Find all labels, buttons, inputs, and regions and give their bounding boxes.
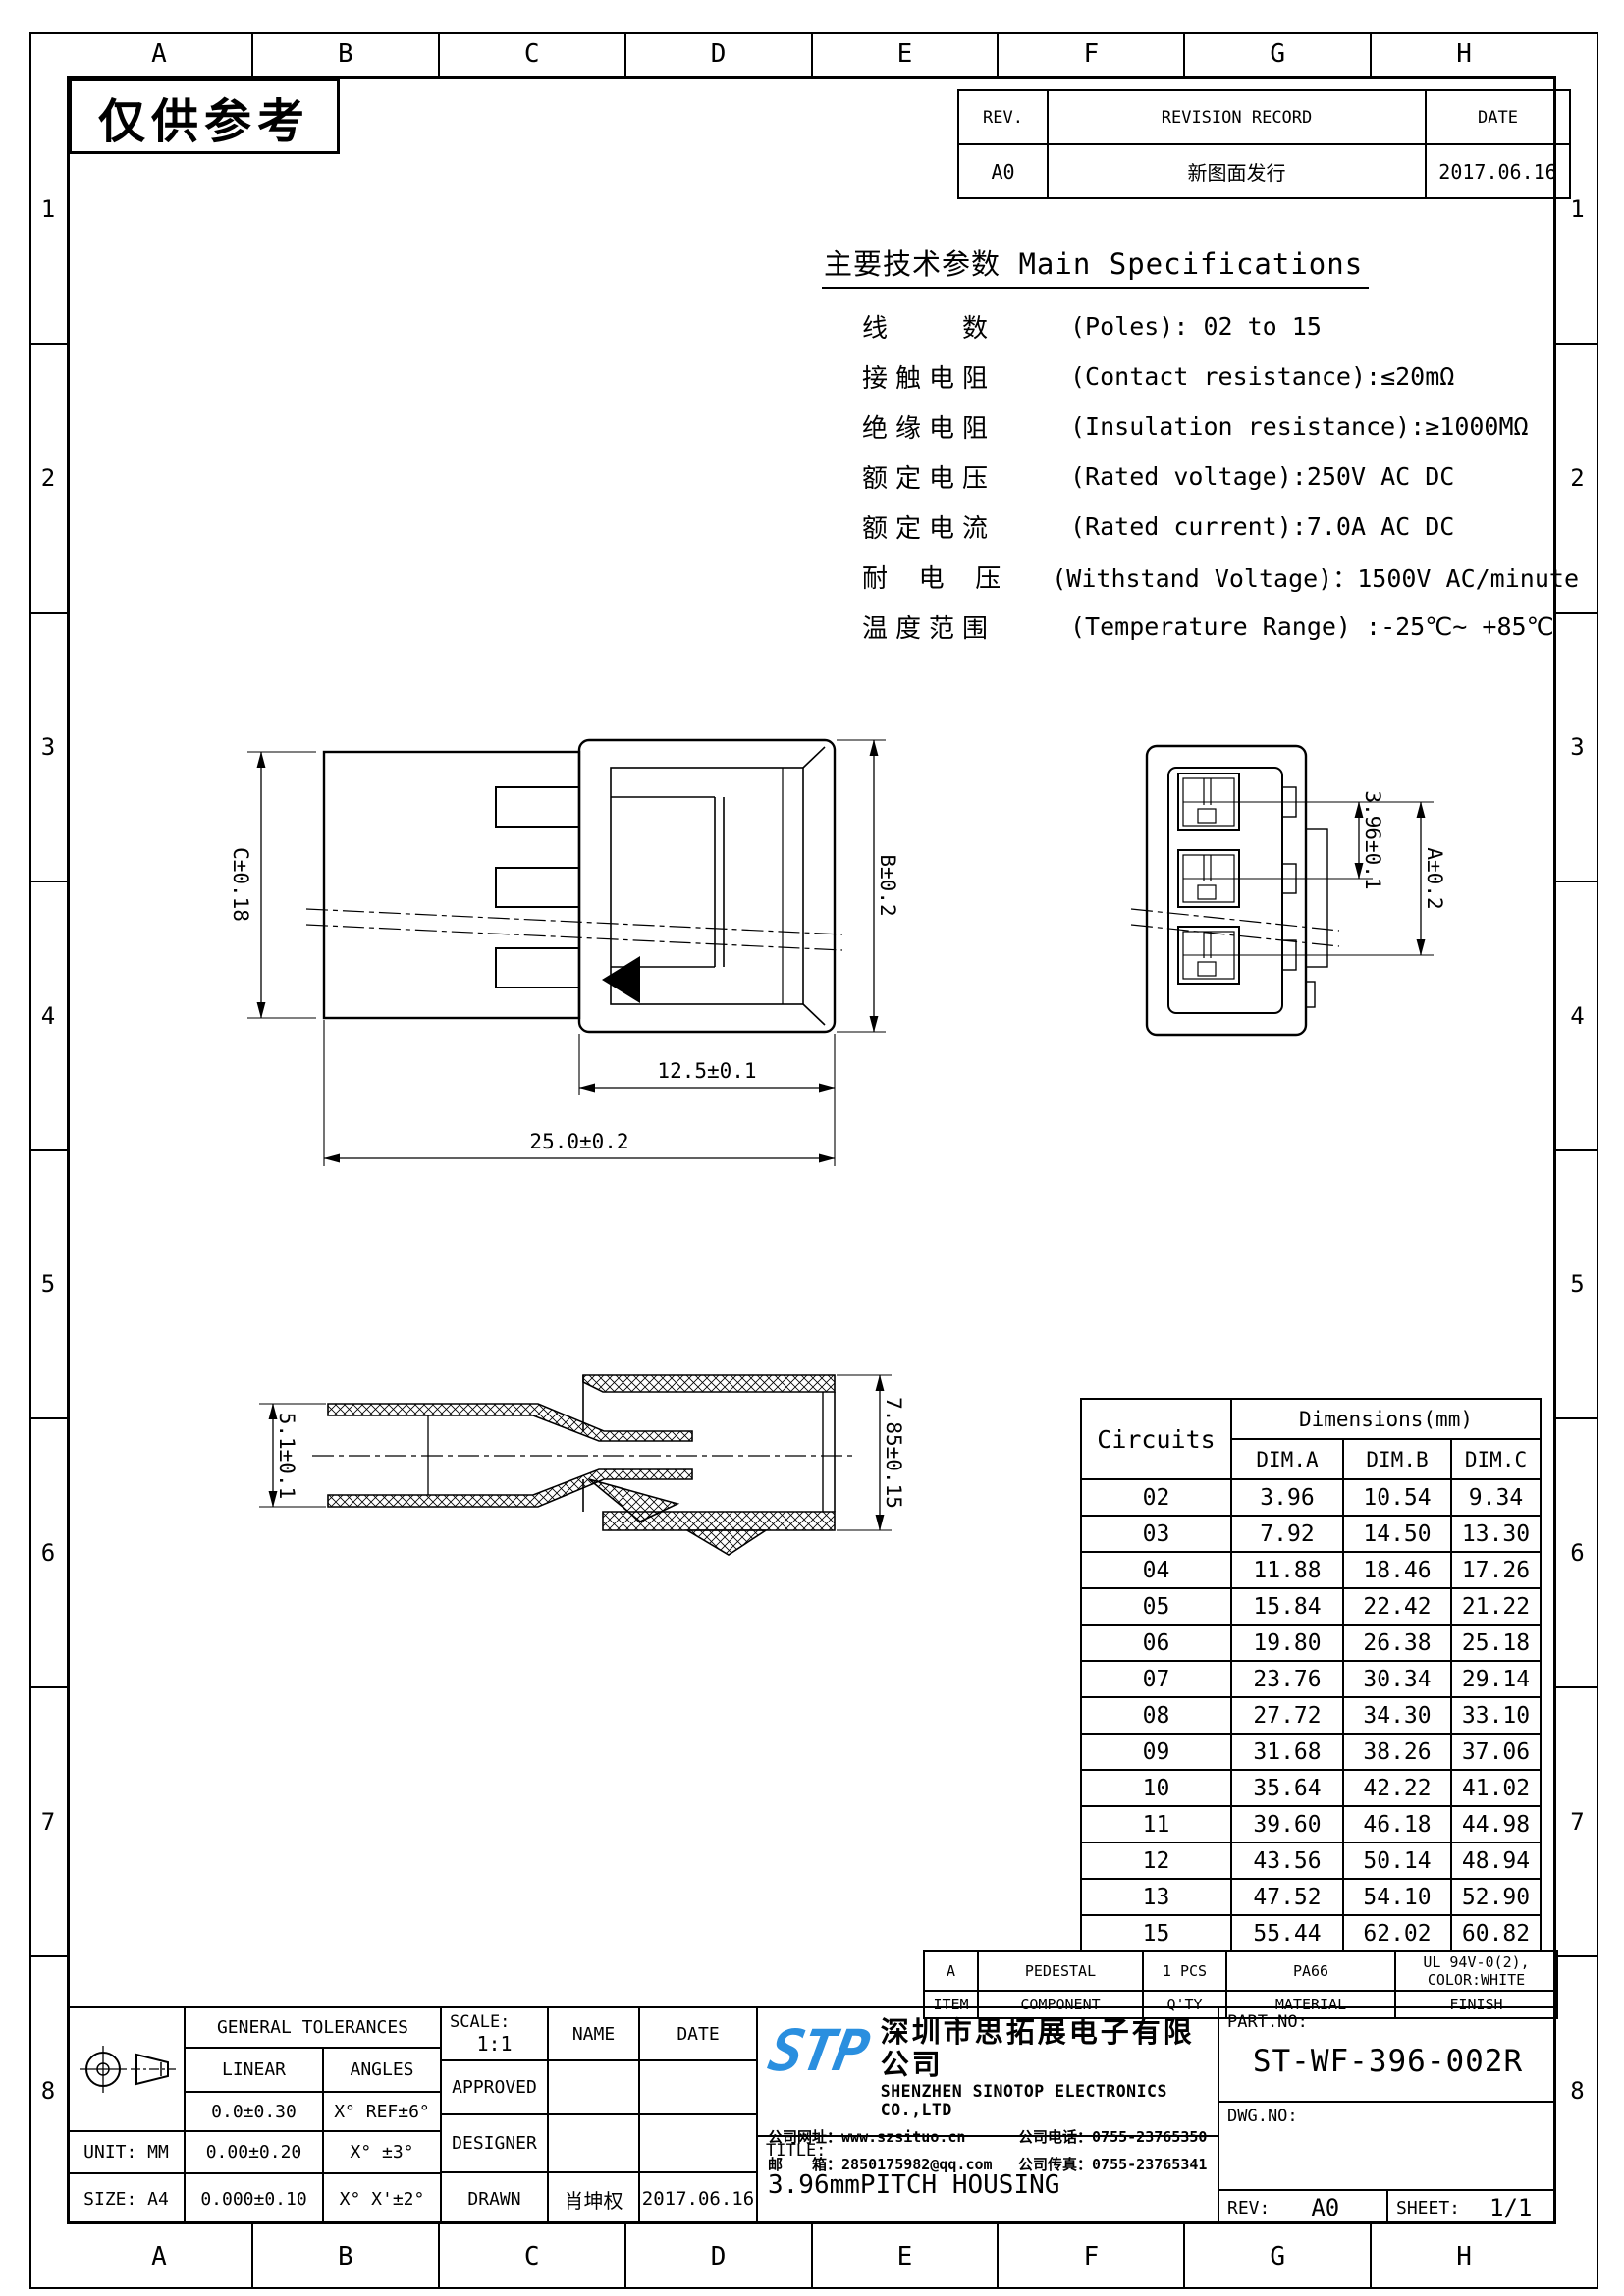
table-row: 13 47.52 54.10 52.90 <box>1081 1879 1541 1915</box>
dim-a-cell: 27.72 <box>1231 1697 1343 1734</box>
part-no-cell: PART.NO: ST-WF-396-002R <box>1218 2006 1556 2101</box>
sheet-cell: SHEET: 1/1 <box>1386 2189 1556 2224</box>
part-no-value: ST-WF-396-002R <box>1219 2032 1556 2079</box>
rev-value: A0 <box>1311 2194 1339 2221</box>
dimension-label: C±0.18 <box>229 847 252 922</box>
circuits-header: Circuits <box>1081 1399 1231 1479</box>
third-angle-projection-icon <box>70 2025 183 2113</box>
circuits-cell: 12 <box>1081 1842 1231 1879</box>
dim-c-cell: 25.18 <box>1451 1625 1541 1661</box>
latch-barb <box>687 1530 766 1555</box>
table-row: 10 35.64 42.22 41.02 <box>1081 1770 1541 1806</box>
front-view-drawing: 3.96±0.1 A±0.2 <box>1131 746 1446 1035</box>
dim-b-cell: 54.10 <box>1343 1879 1451 1915</box>
approved-name <box>547 2059 638 2113</box>
size-cell: SIZE: A4 <box>67 2172 184 2224</box>
scale-value: 1:1 <box>442 2032 547 2056</box>
dim-a-cell: 3.96 <box>1231 1479 1343 1516</box>
circuits-cell: 07 <box>1081 1661 1231 1697</box>
dim-c-cell: 48.94 <box>1451 1842 1541 1879</box>
designer-label: DESIGNER <box>440 2113 547 2171</box>
dim-c-cell: 44.98 <box>1451 1806 1541 1842</box>
dim-a-cell: 47.52 <box>1231 1879 1343 1915</box>
dim-a-cell: 15.84 <box>1231 1588 1343 1625</box>
name-header: NAME <box>547 2006 638 2059</box>
side-view-drawing: C±0.18 B±0.2 12.5±0.1 25.0±0.2 <box>229 740 899 1166</box>
dim-b-cell: 30.34 <box>1343 1661 1451 1697</box>
designer-name <box>547 2113 638 2171</box>
dim-a-cell: 23.76 <box>1231 1661 1343 1697</box>
dim-c-cell: 17.26 <box>1451 1552 1541 1588</box>
drawing-title-box: TITLE: 3.96mmPITCH HOUSING <box>756 2135 1218 2224</box>
qty-cell: 1 PCS <box>1143 1951 1226 1991</box>
table-row: 05 15.84 22.42 21.22 <box>1081 1588 1541 1625</box>
circuits-cell: 11 <box>1081 1806 1231 1842</box>
dim-b-cell: 50.14 <box>1343 1842 1451 1879</box>
dim-a-cell: 55.44 <box>1231 1915 1343 1951</box>
dim-c-header: DIM.C <box>1451 1439 1541 1479</box>
table-row: 11 39.60 46.18 44.98 <box>1081 1806 1541 1842</box>
title-label: TITLE: <box>758 2137 1218 2161</box>
part-no-label: PART.NO: <box>1219 2008 1556 2032</box>
circuits-cell: 03 <box>1081 1516 1231 1552</box>
dim-c-cell: 33.10 <box>1451 1697 1541 1734</box>
table-row: 07 23.76 30.34 29.14 <box>1081 1661 1541 1697</box>
table-row: A PEDESTAL 1 PCS PA66 UL 94V-0(2), COLOR… <box>924 1951 1557 1991</box>
section-view-drawing: 5.1±0.1 7.85±0.15 <box>259 1375 905 1555</box>
rev-cell: REV: A0 <box>1218 2189 1386 2224</box>
dim-b-cell: 14.50 <box>1343 1516 1451 1552</box>
dim-c-cell: 41.02 <box>1451 1770 1541 1806</box>
dim-c-cell: 29.14 <box>1451 1661 1541 1697</box>
designer-date <box>638 2113 756 2171</box>
dim-b-cell: 38.26 <box>1343 1734 1451 1770</box>
dim-a-cell: 39.60 <box>1231 1806 1343 1842</box>
linear-header: LINEAR <box>184 2047 322 2091</box>
finish-cell: UL 94V-0(2), COLOR:WHITE <box>1395 1951 1557 1991</box>
section-arrow <box>602 956 640 1003</box>
unit-cell: UNIT: MM <box>67 2130 184 2172</box>
table-row: 06 19.80 26.38 25.18 <box>1081 1625 1541 1661</box>
tolerance-angle-1: X° REF±6° <box>322 2091 440 2130</box>
dim-b-header: DIM.B <box>1343 1439 1451 1479</box>
dim-c-cell: 60.82 <box>1451 1915 1541 1951</box>
tolerance-angle-2: X° ±3° <box>322 2130 440 2172</box>
break-line <box>1131 925 1339 946</box>
component-cell: PEDESTAL <box>978 1951 1143 1991</box>
page-title: 3.96mmPITCH HOUSING <box>758 2161 1218 2200</box>
dim-b-cell: 34.30 <box>1343 1697 1451 1734</box>
dim-a-header: DIM.A <box>1231 1439 1343 1479</box>
circuits-cell: 10 <box>1081 1770 1231 1806</box>
dimension-label: 3.96±0.1 <box>1361 790 1384 889</box>
table-row: 09 31.68 38.26 37.06 <box>1081 1734 1541 1770</box>
dimensions-table: Circuits Dimensions(mm) DIM.A DIM.B DIM.… <box>1080 1398 1542 1952</box>
sheet-value: 1/1 <box>1489 2194 1532 2221</box>
circuits-cell: 02 <box>1081 1479 1231 1516</box>
dimension-label: 7.85±0.15 <box>882 1397 905 1509</box>
dim-c-cell: 13.30 <box>1451 1516 1541 1552</box>
date-header: DATE <box>638 2006 756 2059</box>
dim-c-cell: 52.90 <box>1451 1879 1541 1915</box>
table-row: 02 3.96 10.54 9.34 <box>1081 1479 1541 1516</box>
table-row: 15 55.44 62.02 60.82 <box>1081 1915 1541 1951</box>
company-box: STP 深圳市思拓展电子有限公司 SHENZHEN SINOTOP ELECTR… <box>756 2006 1218 2135</box>
tolerance-linear-1: 0.0±0.30 <box>184 2091 322 2130</box>
dim-a-cell: 11.88 <box>1231 1552 1343 1588</box>
circuits-cell: 15 <box>1081 1915 1231 1951</box>
general-tolerances-header: GENERAL TOLERANCES <box>184 2006 440 2047</box>
dim-c-cell: 21.22 <box>1451 1588 1541 1625</box>
dimension-label: 5.1±0.1 <box>275 1413 298 1500</box>
table-row: 03 7.92 14.50 13.30 <box>1081 1516 1541 1552</box>
dim-a-cell: 35.64 <box>1231 1770 1343 1806</box>
circuits-cell: 06 <box>1081 1625 1231 1661</box>
dim-b-cell: 62.02 <box>1343 1915 1451 1951</box>
dim-a-cell: 7.92 <box>1231 1516 1343 1552</box>
circuits-cell: 08 <box>1081 1697 1231 1734</box>
dimension-label: B±0.2 <box>876 854 899 916</box>
approved-label: APPROVED <box>440 2059 547 2113</box>
dim-b-cell: 10.54 <box>1343 1479 1451 1516</box>
projection-symbol-cell <box>67 2006 184 2130</box>
dim-b-cell: 26.38 <box>1343 1625 1451 1661</box>
drawn-name: 肖坤权 <box>547 2171 638 2224</box>
dim-b-cell: 22.42 <box>1343 1588 1451 1625</box>
company-name-en: SHENZHEN SINOTOP ELECTRONICS CO.,LTD <box>881 2082 1212 2119</box>
dwg-no-cell: DWG.NO: <box>1218 2101 1556 2189</box>
tolerance-linear-3: 0.000±0.10 <box>184 2172 322 2224</box>
circuits-cell: 05 <box>1081 1588 1231 1625</box>
dimensions-header: Dimensions(mm) <box>1231 1399 1541 1439</box>
dim-a-cell: 43.56 <box>1231 1842 1343 1879</box>
dim-c-cell: 37.06 <box>1451 1734 1541 1770</box>
angles-header: ANGLES <box>322 2047 440 2091</box>
dim-b-cell: 46.18 <box>1343 1806 1451 1842</box>
tolerance-angle-3: X° X'±2° <box>322 2172 440 2224</box>
company-logo: STP <box>765 2022 872 2079</box>
center-line <box>306 925 842 950</box>
drawn-date: 2017.06.16 <box>638 2171 756 2224</box>
circuits-cell: 13 <box>1081 1879 1231 1915</box>
center-line <box>306 909 842 934</box>
sheet-label: SHEET: <box>1396 2198 1460 2218</box>
tolerance-linear-2: 0.00±0.20 <box>184 2130 322 2172</box>
rev-label: REV: <box>1227 2198 1270 2218</box>
item-cell: A <box>924 1951 978 1991</box>
dwg-no-label: DWG.NO: <box>1219 2103 1556 2126</box>
scale-cell: SCALE: 1:1 <box>440 2006 547 2059</box>
dim-c-cell: 9.34 <box>1451 1479 1541 1516</box>
company-name-zh: 深圳市思拓展电子有限公司 <box>881 2016 1212 2082</box>
circuits-cell: 09 <box>1081 1734 1231 1770</box>
material-cell: PA66 <box>1226 1951 1395 1991</box>
dim-a-cell: 19.80 <box>1231 1625 1343 1661</box>
dimension-label: 12.5±0.1 <box>657 1059 756 1083</box>
circuits-cell: 04 <box>1081 1552 1231 1588</box>
scale-label: SCALE: <box>442 2008 547 2032</box>
approved-date <box>638 2059 756 2113</box>
drawn-label: DRAWN <box>440 2171 547 2224</box>
title-block: GENERAL TOLERANCES LINEAR ANGLES 0.0±0.3… <box>67 2006 1556 2224</box>
table-row: 04 11.88 18.46 17.26 <box>1081 1552 1541 1588</box>
dim-b-cell: 18.46 <box>1343 1552 1451 1588</box>
dimension-label: A±0.2 <box>1423 847 1446 909</box>
dim-b-cell: 42.22 <box>1343 1770 1451 1806</box>
dim-a-cell: 31.68 <box>1231 1734 1343 1770</box>
table-row: 08 27.72 34.30 33.10 <box>1081 1697 1541 1734</box>
dimension-label: 25.0±0.2 <box>529 1130 628 1153</box>
table-row: 12 43.56 50.14 48.94 <box>1081 1842 1541 1879</box>
